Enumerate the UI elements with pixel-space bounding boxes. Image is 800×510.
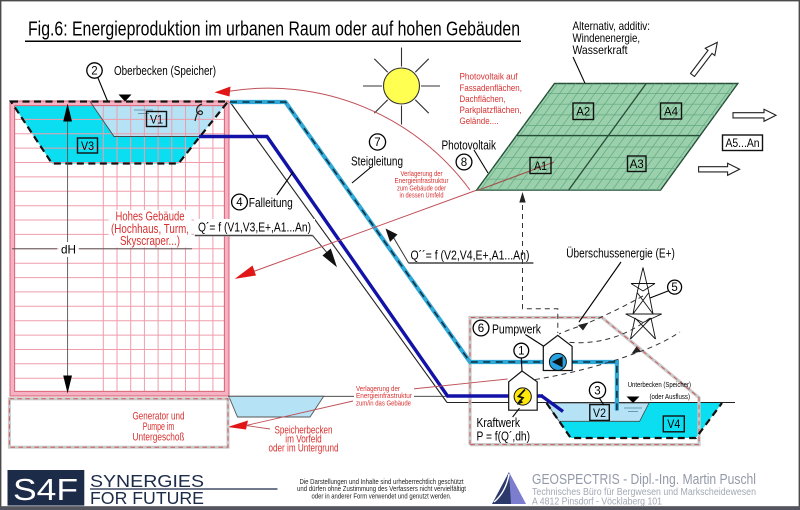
- svg-text:Parkplatzflächen,: Parkplatzflächen,: [460, 105, 522, 116]
- svg-text:Oberbecken (Speicher): Oberbecken (Speicher): [114, 64, 216, 78]
- svg-text:Pumpwerk: Pumpwerk: [492, 323, 542, 337]
- svg-text:Photovoltaik auf: Photovoltaik auf: [460, 72, 518, 83]
- svg-text:Q´´= f (V2,V4,E+,A1...An): Q´´= f (V2,V4,E+,A1...An): [411, 249, 530, 263]
- svg-text:S4F: S4F: [13, 472, 78, 507]
- svg-text:A5...An: A5...An: [726, 136, 760, 150]
- svg-text:V2: V2: [593, 406, 606, 420]
- svg-text:A 4812 Pinsdorf - Vöcklaberg 1: A 4812 Pinsdorf - Vöcklaberg 101: [532, 497, 662, 508]
- svg-text:Skyscraper...): Skyscraper...): [120, 234, 180, 248]
- svg-text:A4: A4: [664, 104, 678, 118]
- svg-text:Fig.6: Energieproduktion im ur: Fig.6: Energieproduktion im urbanen Raum…: [28, 19, 520, 41]
- svg-text:oder im Untergrund: oder im Untergrund: [269, 443, 339, 455]
- svg-text:P = f(Q´,dh): P = f(Q´,dh): [477, 430, 531, 444]
- svg-text:Unterbecken (Speicher): Unterbecken (Speicher): [628, 380, 692, 389]
- svg-text:1: 1: [518, 346, 524, 358]
- svg-text:A2: A2: [576, 105, 590, 119]
- svg-text:Gelände....: Gelände....: [460, 116, 499, 127]
- svg-text:6: 6: [478, 323, 484, 335]
- svg-text:Falleitung: Falleitung: [249, 196, 293, 210]
- svg-text:GEOSPECTRIS - Dipl.-Ing. Marti: GEOSPECTRIS - Dipl.-Ing. Martin Puschl: [532, 472, 756, 488]
- svg-text:Steigleitung: Steigleitung: [351, 155, 403, 169]
- svg-text:7: 7: [374, 137, 380, 149]
- svg-text:Überschussenergie (E+): Überschussenergie (E+): [566, 247, 675, 261]
- svg-text:in dessen Umfeld: in dessen Umfeld: [400, 191, 444, 200]
- svg-text:(oder Ausfluss): (oder Ausfluss): [650, 392, 691, 401]
- svg-text:5: 5: [671, 282, 677, 294]
- svg-text:Dachflächen,: Dachflächen,: [460, 94, 506, 105]
- svg-text:8: 8: [461, 157, 467, 169]
- svg-text:4: 4: [236, 197, 243, 209]
- svg-text:3: 3: [594, 385, 600, 397]
- svg-text:A1: A1: [534, 159, 547, 173]
- svg-text:FOR FUTURE: FOR FUTURE: [90, 488, 204, 508]
- svg-text:A3: A3: [630, 157, 644, 171]
- svg-text:Untergeschoß: Untergeschoß: [133, 432, 185, 444]
- svg-text:V3: V3: [81, 139, 94, 153]
- svg-text:V1: V1: [150, 112, 163, 126]
- svg-text:zum/in das Gebäude: zum/in das Gebäude: [356, 398, 411, 407]
- svg-text:oder in anderer Form verwendet: oder in anderer Form verwendet und genut…: [312, 491, 452, 500]
- svg-text:2: 2: [91, 66, 97, 78]
- svg-text:Kraftwerk: Kraftwerk: [477, 416, 521, 430]
- svg-text:Photovoltaik: Photovoltaik: [442, 139, 497, 153]
- svg-text:Q´= f (V1,V3,E+,A1...An): Q´= f (V1,V3,E+,A1...An): [198, 221, 311, 235]
- svg-text:dH: dH: [61, 243, 76, 257]
- svg-text:Wasserkraft: Wasserkraft: [573, 43, 629, 57]
- svg-text:Fassadenflächen,: Fassadenflächen,: [460, 83, 522, 94]
- svg-text:V4: V4: [667, 417, 680, 431]
